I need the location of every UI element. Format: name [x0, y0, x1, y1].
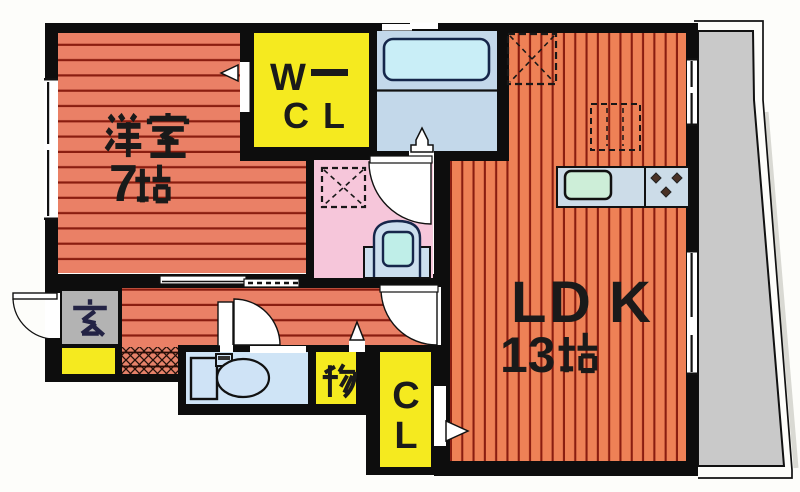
svg-text:L: L: [511, 270, 546, 335]
svg-text:D: D: [549, 270, 591, 335]
svg-text:CL: CL: [283, 95, 359, 136]
svg-text:W: W: [270, 57, 306, 99]
svg-text:K: K: [609, 270, 651, 335]
svg-text:C: C: [392, 375, 419, 417]
svg-text:13: 13: [500, 327, 556, 383]
svg-text:7: 7: [109, 155, 138, 213]
svg-text:L: L: [394, 415, 417, 457]
